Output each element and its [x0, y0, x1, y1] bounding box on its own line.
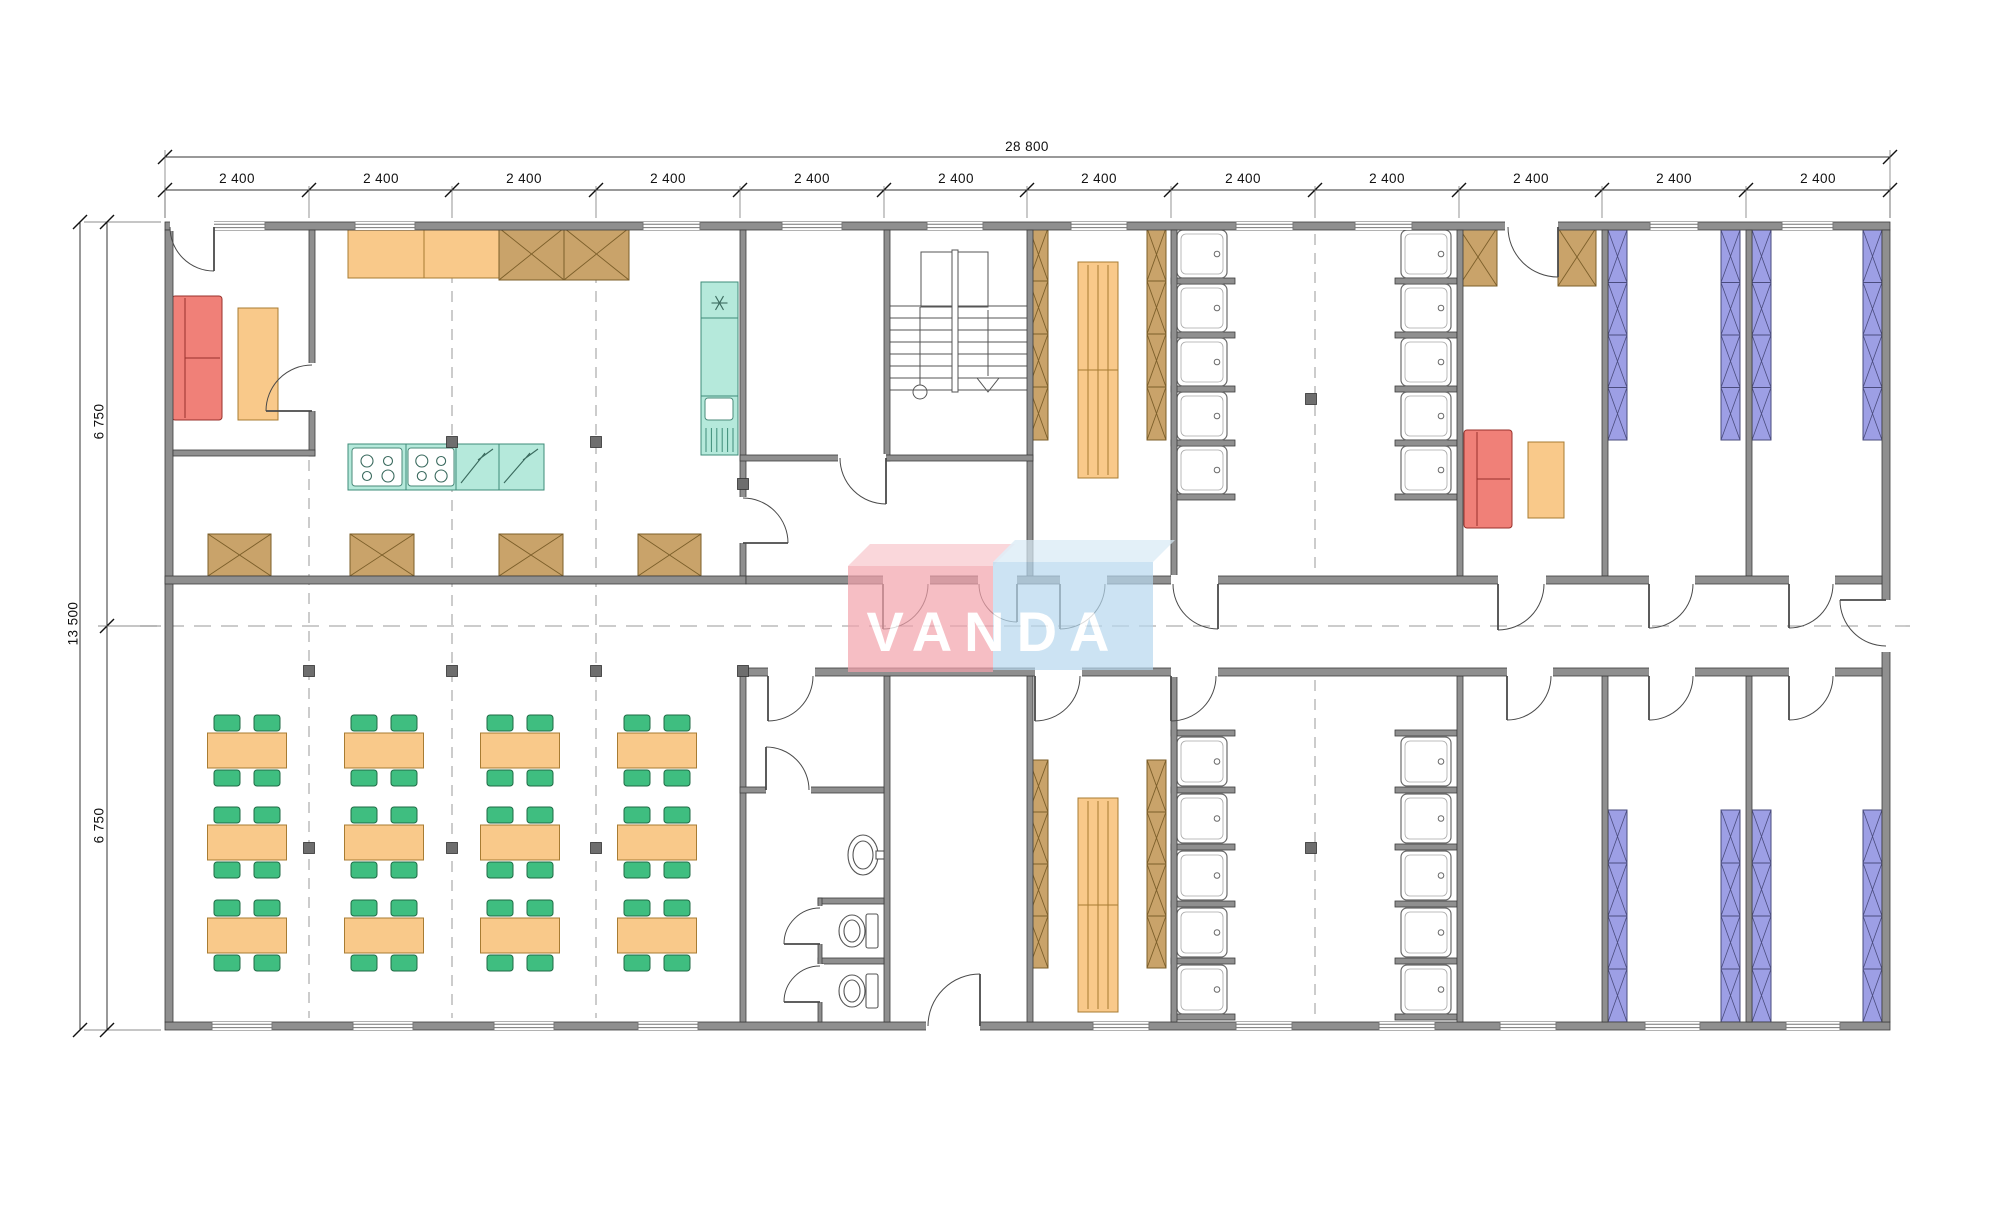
- window: [1782, 222, 1833, 230]
- wall: [173, 450, 315, 456]
- column-post: [591, 437, 602, 448]
- chair: [527, 807, 553, 823]
- window: [927, 222, 983, 230]
- toilet-bowl-inner: [844, 980, 860, 1002]
- dining-table: [208, 918, 287, 953]
- dining-table: [481, 733, 560, 768]
- dining-table: [481, 918, 560, 953]
- wall: [1171, 676, 1177, 1022]
- chair: [391, 955, 417, 971]
- bunk-bed-column: [1863, 810, 1882, 1022]
- window: [1236, 222, 1293, 230]
- stove-burner: [417, 472, 426, 481]
- dining-table-group: [345, 807, 424, 878]
- chair: [214, 770, 240, 786]
- dining-table: [345, 825, 424, 860]
- chair: [391, 715, 417, 731]
- shower-column: [1395, 230, 1457, 500]
- dim-half-height-bottom: 6 750: [92, 796, 107, 856]
- door-opening: [838, 454, 886, 462]
- door: [784, 966, 820, 1002]
- door-opening: [739, 497, 747, 543]
- chair: [527, 715, 553, 731]
- door-opening: [1649, 667, 1695, 677]
- window: [1071, 222, 1127, 230]
- chair: [624, 770, 650, 786]
- wall: [740, 787, 884, 793]
- dim-module-width: 2 400: [1347, 171, 1427, 186]
- stove-burner: [384, 457, 393, 466]
- stove-burner: [382, 470, 394, 482]
- door-opening: [816, 906, 824, 944]
- column-post: [304, 843, 315, 854]
- stair-start-symbol: [913, 385, 927, 399]
- locker-column: [1147, 760, 1166, 968]
- chair: [254, 807, 280, 823]
- wall: [1746, 676, 1752, 1022]
- wall: [1027, 230, 1033, 576]
- door-swing-arc: [1508, 227, 1558, 277]
- chair: [487, 770, 513, 786]
- dim-half-height-top: 6 750: [92, 392, 107, 452]
- door-opening: [1035, 667, 1082, 677]
- chair: [351, 807, 377, 823]
- chair: [391, 900, 417, 916]
- toilet-tank: [866, 974, 878, 1008]
- table: [238, 308, 278, 420]
- chair: [254, 900, 280, 916]
- dining-table-group: [481, 900, 560, 971]
- dining-table-group: [345, 715, 424, 786]
- chair: [624, 807, 650, 823]
- shower-partition: [1171, 901, 1235, 907]
- stove-burner: [363, 472, 372, 481]
- chair: [391, 862, 417, 878]
- dining-table-group: [481, 715, 560, 786]
- chair: [391, 770, 417, 786]
- window: [494, 1022, 554, 1030]
- door: [170, 227, 214, 271]
- door-opening: [1789, 575, 1835, 585]
- dim-module-width: 2 400: [341, 171, 421, 186]
- chair: [214, 900, 240, 916]
- wall: [818, 898, 884, 904]
- dim-module-width: 2 400: [484, 171, 564, 186]
- door-opening: [1505, 221, 1558, 231]
- dining-table-group: [618, 807, 697, 878]
- wall: [165, 230, 173, 1022]
- bunk-bed-column: [1721, 230, 1740, 440]
- window: [353, 1022, 413, 1030]
- window: [782, 222, 842, 230]
- dim-module-width: 2 400: [1203, 171, 1283, 186]
- dim-module-width: 2 400: [628, 171, 708, 186]
- stove-burner: [416, 455, 428, 467]
- shower-partition: [1395, 332, 1457, 338]
- door: [883, 584, 928, 629]
- wall: [746, 668, 1882, 676]
- column-post: [591, 666, 602, 677]
- wall: [1457, 676, 1463, 1022]
- chair: [664, 862, 690, 878]
- chair: [664, 715, 690, 731]
- wall: [1457, 230, 1463, 576]
- chair: [254, 770, 280, 786]
- door-swing-arc: [768, 676, 813, 721]
- dining-table: [345, 918, 424, 953]
- dining-table-group: [208, 900, 287, 971]
- door-opening: [768, 667, 815, 677]
- chair: [254, 955, 280, 971]
- window: [1093, 1022, 1149, 1030]
- chair: [254, 862, 280, 878]
- wall: [1746, 230, 1752, 576]
- dim-module-width: 2 400: [1634, 171, 1714, 186]
- shower-partition: [1395, 440, 1457, 446]
- door-swing-arc: [766, 747, 809, 790]
- wall: [1602, 676, 1608, 1022]
- dim-total-width: 28 800: [927, 139, 1127, 154]
- door-swing-arc: [1789, 676, 1833, 720]
- dining-table: [618, 733, 697, 768]
- wall: [818, 958, 884, 964]
- storage-box: [1459, 228, 1497, 286]
- stove-burner: [361, 455, 373, 467]
- bunk-bed-column: [1608, 810, 1627, 1022]
- door-opening: [1649, 575, 1695, 585]
- door: [1173, 584, 1218, 629]
- locker-column: [1147, 228, 1166, 440]
- door-swing-arc: [1035, 676, 1080, 721]
- door: [1171, 676, 1216, 721]
- dining-table: [618, 825, 697, 860]
- dining-table: [208, 825, 287, 860]
- kitchen-island: [348, 444, 544, 490]
- stair-stringer: [952, 250, 958, 392]
- window: [355, 222, 415, 230]
- door-swing-arc: [1060, 584, 1105, 629]
- dining-table-group: [481, 807, 560, 878]
- door-swing-arc: [743, 498, 788, 543]
- wall: [1027, 676, 1033, 1022]
- shower-partition: [1395, 1014, 1457, 1020]
- dim-module-width: 2 400: [1059, 171, 1139, 186]
- window: [1500, 1022, 1556, 1030]
- storage-box: [638, 534, 701, 576]
- door-swing-arc: [784, 908, 820, 944]
- door-swing-arc: [1789, 584, 1833, 628]
- door-swing-arc: [1173, 584, 1218, 629]
- bunk-bed-column: [1752, 810, 1771, 1022]
- door: [1840, 600, 1886, 646]
- dining-table-group: [345, 900, 424, 971]
- sofa: [1464, 430, 1512, 528]
- door-swing-arc: [928, 974, 980, 1026]
- door-opening: [1881, 600, 1891, 652]
- storage-box: [499, 228, 629, 280]
- washbasin: [848, 835, 885, 875]
- door-opening: [978, 575, 1017, 585]
- door: [928, 974, 980, 1026]
- shower-partition: [1171, 494, 1235, 500]
- door-opening: [926, 1021, 980, 1031]
- toilet: [839, 974, 878, 1008]
- chair: [527, 955, 553, 971]
- toilet: [839, 914, 878, 948]
- wall: [884, 676, 890, 1022]
- fridge-sink-unit: [701, 282, 738, 455]
- staircase: [890, 250, 1027, 399]
- chair: [351, 715, 377, 731]
- chair: [351, 862, 377, 878]
- chair: [664, 955, 690, 971]
- dim-module-width: 2 400: [1778, 171, 1858, 186]
- dining-table-group: [208, 715, 287, 786]
- column-post: [447, 666, 458, 677]
- door-opening: [1171, 575, 1218, 585]
- chair: [624, 955, 650, 971]
- chair: [351, 770, 377, 786]
- door: [1507, 676, 1551, 720]
- wall: [165, 222, 1890, 230]
- door-opening: [1507, 667, 1553, 677]
- wall: [1171, 230, 1177, 576]
- shower-column: [1171, 730, 1235, 1020]
- window: [638, 1022, 698, 1030]
- chair: [351, 900, 377, 916]
- shower-partition: [1171, 958, 1235, 964]
- door-swing-arc: [784, 966, 820, 1002]
- door-swing-arc: [1649, 676, 1693, 720]
- chair: [214, 955, 240, 971]
- door-swing-arc: [883, 584, 928, 629]
- chair: [527, 770, 553, 786]
- bench: [1078, 798, 1118, 1012]
- door-swing-arc: [1507, 676, 1551, 720]
- door: [979, 584, 1017, 622]
- door: [1649, 584, 1693, 628]
- dim-module-width: 2 400: [1491, 171, 1571, 186]
- sofa: [166, 294, 222, 422]
- stove-burner: [435, 470, 447, 482]
- chair: [487, 807, 513, 823]
- storage-box: [1558, 228, 1596, 286]
- chair: [351, 955, 377, 971]
- door: [1789, 676, 1833, 720]
- window: [1355, 222, 1412, 230]
- chair: [664, 807, 690, 823]
- door-opening: [766, 786, 811, 794]
- door: [1498, 584, 1544, 630]
- storage-box: [350, 534, 414, 576]
- door-swing-arc: [1498, 584, 1544, 630]
- dim-module-width: 2 400: [772, 171, 852, 186]
- door-opening: [883, 575, 930, 585]
- toilet-tank: [866, 914, 878, 948]
- dining-table-group: [618, 900, 697, 971]
- dining-table: [481, 825, 560, 860]
- door-swing-arc: [1840, 600, 1886, 646]
- wall: [309, 230, 315, 456]
- dim-module-width: 2 400: [916, 171, 996, 186]
- door-swing-arc: [840, 458, 886, 504]
- chair: [664, 900, 690, 916]
- door-swing-arc: [170, 227, 214, 271]
- shower-partition: [1395, 958, 1457, 964]
- window: [1236, 1022, 1292, 1030]
- dim-module-width: 2 400: [197, 171, 277, 186]
- shower-partition: [1395, 386, 1457, 392]
- door: [840, 458, 886, 504]
- door: [1789, 584, 1833, 628]
- door-opening: [1060, 575, 1107, 585]
- wall: [1602, 230, 1608, 576]
- bench: [1078, 262, 1118, 478]
- door: [784, 908, 820, 944]
- chair: [214, 862, 240, 878]
- dim-total-height: 13 500: [66, 594, 81, 654]
- column-post: [304, 666, 315, 677]
- toilet-bowl-inner: [844, 920, 860, 942]
- door: [766, 747, 809, 790]
- wall: [165, 1022, 1890, 1030]
- chair: [624, 900, 650, 916]
- shower-partition: [1395, 730, 1457, 736]
- floor-plan-page: VANDA 28 800 2 4002 4002 4002 4002 4002 …: [0, 0, 2000, 1216]
- shower-partition: [1395, 278, 1457, 284]
- chair: [487, 900, 513, 916]
- chair: [214, 807, 240, 823]
- bunk-bed-column: [1752, 230, 1771, 440]
- chair: [527, 862, 553, 878]
- shower-partition: [1171, 730, 1235, 736]
- shower-partition: [1171, 787, 1235, 793]
- door: [1060, 584, 1105, 629]
- window: [1379, 1022, 1435, 1030]
- stove: [408, 448, 454, 486]
- dining-table: [618, 918, 697, 953]
- table: [1528, 442, 1564, 518]
- window: [1645, 1022, 1700, 1030]
- column-post: [1306, 394, 1317, 405]
- shower-partition: [1171, 1014, 1235, 1020]
- column-post: [738, 666, 749, 677]
- dining-table-group: [618, 715, 697, 786]
- column-post: [591, 843, 602, 854]
- chair: [214, 715, 240, 731]
- storage-box: [499, 534, 563, 576]
- shower-partition: [1171, 440, 1235, 446]
- storage-box: [208, 534, 271, 576]
- shower-partition: [1395, 844, 1457, 850]
- column-post: [1306, 843, 1317, 854]
- shower-column: [1395, 730, 1457, 1020]
- door-swing-arc: [979, 584, 1017, 622]
- stove: [352, 448, 402, 486]
- wall: [740, 668, 746, 1022]
- bunk-bed-column: [1721, 810, 1740, 1022]
- chair: [624, 862, 650, 878]
- bunk-bed-column: [1608, 230, 1627, 440]
- basin-bowl: [853, 841, 873, 869]
- chair: [487, 862, 513, 878]
- door-opening: [1171, 667, 1218, 677]
- furniture: [166, 228, 1882, 1022]
- dining-table: [345, 733, 424, 768]
- shower-partition: [1395, 787, 1457, 793]
- chair: [527, 900, 553, 916]
- shower-partition: [1171, 844, 1235, 850]
- shower-partition: [1395, 901, 1457, 907]
- bunk-bed-column: [1863, 230, 1882, 440]
- dining-table: [208, 733, 287, 768]
- dining-table-group: [208, 807, 287, 878]
- door-opening: [1498, 575, 1546, 585]
- chair: [624, 715, 650, 731]
- door: [1508, 227, 1558, 277]
- window: [212, 1022, 272, 1030]
- door-opening: [308, 363, 316, 411]
- wall: [884, 230, 890, 461]
- shower-column: [1171, 230, 1235, 500]
- wall: [165, 576, 746, 584]
- fridge-body: [701, 282, 738, 455]
- column-post: [447, 843, 458, 854]
- door-opening: [1789, 667, 1835, 677]
- chair: [254, 715, 280, 731]
- door: [768, 676, 813, 721]
- window: [643, 222, 700, 230]
- door-opening: [816, 964, 824, 1002]
- chair: [664, 770, 690, 786]
- door: [1649, 676, 1693, 720]
- shower-partition: [1171, 386, 1235, 392]
- window: [1786, 1022, 1840, 1030]
- shower-partition: [1171, 332, 1235, 338]
- column-post: [447, 437, 458, 448]
- door-opening: [170, 221, 214, 231]
- door: [743, 498, 788, 543]
- chair: [487, 715, 513, 731]
- shower-partition: [1171, 278, 1235, 284]
- chair: [487, 955, 513, 971]
- shower-partition: [1395, 494, 1457, 500]
- column-post: [738, 479, 749, 490]
- door-swing-arc: [1649, 584, 1693, 628]
- door-swing-arc: [1171, 676, 1216, 721]
- door: [1035, 676, 1080, 721]
- chair: [391, 807, 417, 823]
- stove-burner: [437, 457, 446, 466]
- window: [1650, 222, 1698, 230]
- kitchen-sink: [705, 398, 733, 420]
